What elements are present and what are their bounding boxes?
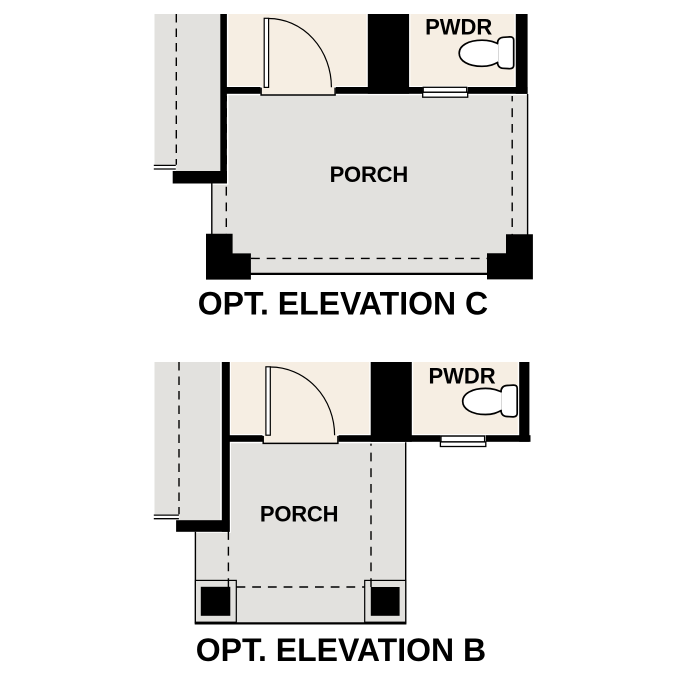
svg-text:OPT. ELEVATION C: OPT. ELEVATION C <box>198 286 488 322</box>
svg-text:PORCH: PORCH <box>330 162 408 187</box>
svg-text:PWDR: PWDR <box>425 15 492 40</box>
svg-text:OPT. ELEVATION B: OPT. ELEVATION B <box>196 632 486 668</box>
svg-text:PWDR: PWDR <box>428 363 495 388</box>
svg-text:PORCH: PORCH <box>260 501 338 526</box>
